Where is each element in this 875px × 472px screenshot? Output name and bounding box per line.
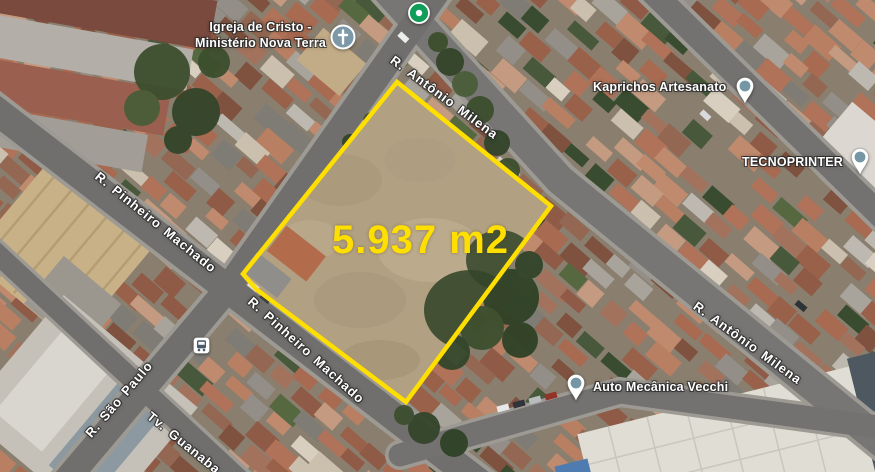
tecnoprinter-teardrop-pin-icon[interactable] (849, 146, 871, 176)
green-dot-pin-icon[interactable] (408, 2, 430, 24)
satellite-map[interactable]: R. Antônio Milena R. Antônio Milena R. P… (0, 0, 875, 472)
bus-stop-icon[interactable] (193, 337, 210, 354)
kaprichos-teardrop-pin-icon[interactable] (734, 75, 756, 105)
church-pin-icon[interactable] (330, 24, 356, 50)
auto-mecanica-teardrop-pin-icon[interactable] (565, 372, 587, 402)
satellite-imagery (0, 0, 875, 472)
